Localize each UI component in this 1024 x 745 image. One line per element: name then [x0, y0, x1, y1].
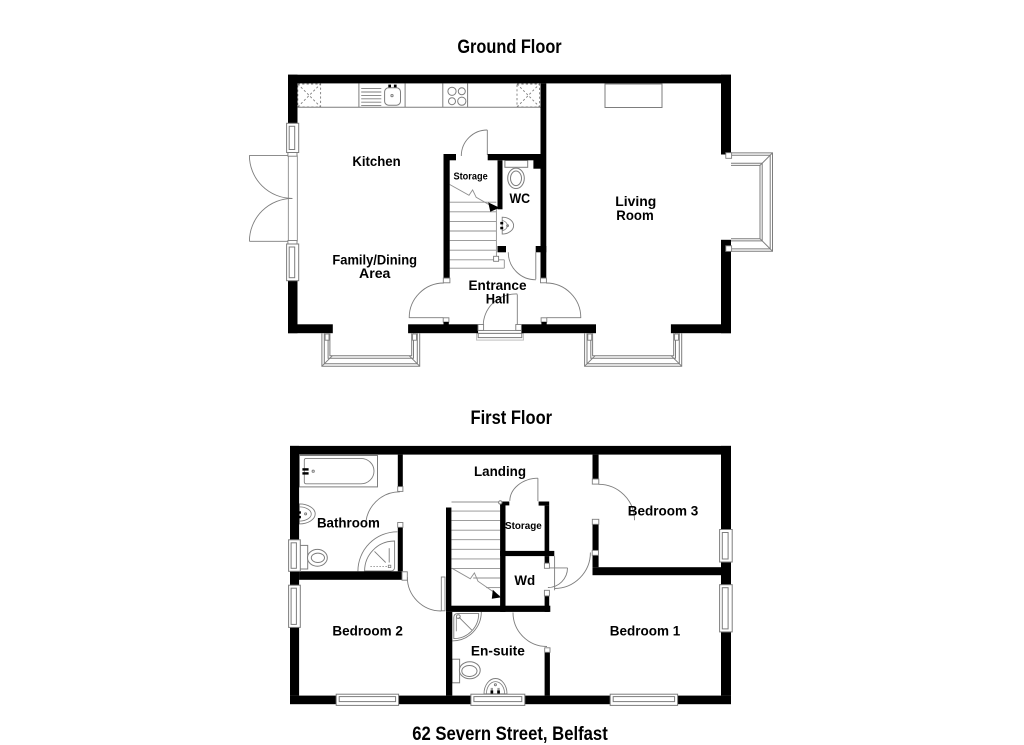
svg-text:Bathroom: Bathroom	[317, 515, 380, 530]
svg-text:Storage: Storage	[454, 171, 489, 182]
svg-text:WC: WC	[510, 191, 531, 206]
svg-text:Storage: Storage	[505, 520, 542, 532]
svg-text:Ground Floor: Ground Floor	[457, 36, 562, 58]
svg-text:Room: Room	[616, 207, 653, 223]
svg-text:Landing: Landing	[474, 463, 526, 479]
svg-text:Bedroom 1: Bedroom 1	[610, 623, 681, 638]
svg-text:62 Severn Street, Belfast: 62 Severn Street, Belfast	[412, 723, 608, 745]
svg-text:Hall: Hall	[486, 291, 510, 306]
svg-text:En-suite: En-suite	[471, 644, 525, 659]
svg-text:First Floor: First Floor	[471, 407, 553, 429]
svg-text:Wd: Wd	[514, 572, 535, 588]
svg-text:Kitchen: Kitchen	[352, 153, 400, 169]
svg-text:Bedroom 2: Bedroom 2	[332, 623, 403, 638]
svg-text:Area: Area	[359, 265, 391, 281]
svg-text:Bedroom 3: Bedroom 3	[628, 504, 699, 519]
